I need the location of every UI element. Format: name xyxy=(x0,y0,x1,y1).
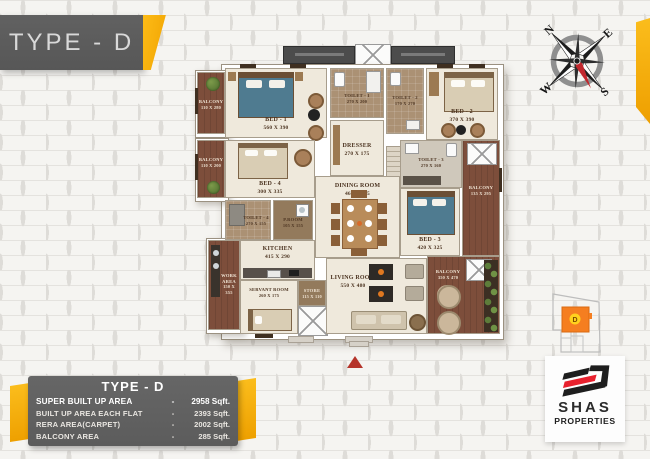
sofa-icon xyxy=(351,311,407,330)
room-label: BED - 4 300 X 335 xyxy=(226,181,314,195)
pillow xyxy=(471,80,485,87)
room-dims: 105 X 155 xyxy=(274,223,312,229)
room-dims: 270 X 160 xyxy=(401,163,461,169)
spec-separator: - xyxy=(166,408,180,420)
table-icon xyxy=(456,125,466,135)
chair-icon xyxy=(331,235,340,246)
cushion xyxy=(381,315,401,324)
spec-label: RERA AREA(CARPET) xyxy=(36,419,166,431)
armchair-icon xyxy=(405,264,424,279)
plant-icon xyxy=(206,77,220,91)
room-name: TOILET - 4 xyxy=(242,215,270,221)
spec-separator: - xyxy=(166,431,180,443)
chair-icon xyxy=(378,235,387,246)
bed-icon xyxy=(248,309,292,331)
type-banner: TYPE - D xyxy=(0,15,143,70)
spec-separator: - xyxy=(166,396,180,408)
fire-dot xyxy=(378,291,384,297)
spec-value: 285 Sqft. xyxy=(180,431,230,443)
plate xyxy=(365,235,372,242)
room-name: BALCONY xyxy=(198,157,224,163)
stool-icon xyxy=(470,123,485,138)
compass-s-label: S xyxy=(598,85,612,99)
chair-icon xyxy=(351,190,367,198)
washer-drum xyxy=(213,250,219,256)
compass-rose-icon: N E S W xyxy=(511,0,644,127)
nightstand xyxy=(228,72,236,81)
room-balcony-ml: BALCONY 110 X 200 xyxy=(197,140,225,198)
sink-icon xyxy=(267,270,281,278)
center-dish xyxy=(357,221,362,226)
wc-icon xyxy=(390,72,401,86)
stair-void xyxy=(298,306,328,336)
room-toilet-1: TOILET - 1 270 X 200 xyxy=(330,68,384,118)
room-dims: 300 X 335 xyxy=(226,189,314,196)
room-label: TOILET - 1 270 X 200 xyxy=(331,93,383,104)
logo-card: SHAS PROPERTIES xyxy=(545,356,625,442)
entry-step xyxy=(349,341,369,347)
spec-value: 2393 Sqft. xyxy=(180,408,230,420)
window-icon xyxy=(290,64,306,68)
shaft-plate xyxy=(295,53,344,56)
tv-unit-icon xyxy=(369,264,393,280)
room-label: TOILET - 4 270 X 155 xyxy=(242,215,270,226)
spec-table: TYPE - D SUPER BUILT UP AREA - 2958 Sqft… xyxy=(28,376,238,446)
room-dims: 270 X 200 xyxy=(331,99,383,105)
bed-icon xyxy=(238,72,294,118)
pillow xyxy=(255,316,262,324)
chair-icon xyxy=(331,219,340,230)
room-servant: SERVANT ROOM 260 X 175 xyxy=(240,280,298,334)
room-dims: 370 X 390 xyxy=(427,117,497,124)
duct-void xyxy=(355,44,391,66)
room-name: BED - 3 xyxy=(401,237,459,245)
window-icon xyxy=(437,64,453,68)
brochure-page: TYPE - D N E S W xyxy=(0,0,650,459)
bed-icon xyxy=(407,191,455,235)
planter-icon xyxy=(437,285,461,309)
pillow xyxy=(432,199,446,206)
room-dims: 170 X 270 xyxy=(387,101,423,107)
room-label: BALCONY 350 X 470 xyxy=(428,269,468,280)
room-work-area: WORK AREA 150 X 355 xyxy=(208,240,240,330)
room-name: WORK AREA xyxy=(219,273,239,284)
shas-logo-icon xyxy=(556,363,614,399)
planter-strip-icon xyxy=(484,260,498,332)
kitchen-counter-icon xyxy=(243,268,312,278)
side-table-icon xyxy=(409,314,426,331)
room-name: DRESSER xyxy=(331,143,383,151)
room-bed-3: BED - 3 420 X 325 xyxy=(400,188,460,256)
headboard xyxy=(249,310,253,330)
room-name: KITCHEN xyxy=(241,246,314,254)
compass-e-label: E xyxy=(601,26,616,41)
washer-icon xyxy=(296,204,309,217)
spec-separator: - xyxy=(166,419,180,431)
room-label: TOILET - 2 170 X 270 xyxy=(387,95,423,106)
wc-icon xyxy=(334,72,345,87)
dining-table-icon xyxy=(342,199,378,249)
armchair-icon xyxy=(405,286,424,301)
room-toilet-2: TOILET - 2 170 X 270 xyxy=(386,68,424,134)
washer-drum xyxy=(299,207,305,213)
room-store: STORE 115 X 110 xyxy=(298,280,326,306)
room-toilet-3: TOILET - 3 270 X 160 xyxy=(400,140,462,188)
wc-icon xyxy=(446,143,457,157)
room-dims: 135 X 295 xyxy=(463,191,499,197)
spec-label: SUPER BUILT UP AREA xyxy=(36,396,166,408)
room-dims: 560 X 390 xyxy=(226,125,326,132)
room-toilet-4: TOILET - 4 270 X 155 xyxy=(225,200,271,240)
room-label: BED - 2 370 X 390 xyxy=(427,109,497,123)
logo-brand-text: SHAS xyxy=(558,401,612,415)
room-label: BED - 3 420 X 325 xyxy=(401,237,459,251)
spec-label: BUILT UP AREA EACH FLAT xyxy=(36,408,166,420)
room-dims: 110 X 200 xyxy=(198,163,224,169)
room-label: P.ROOM 105 X 155 xyxy=(274,217,312,228)
room-name: SERVANT ROOM xyxy=(241,287,297,293)
room-bed-4: BED - 4 300 X 335 xyxy=(225,140,315,198)
chair-icon xyxy=(331,203,340,214)
shower-icon xyxy=(366,71,381,93)
basin-counter xyxy=(406,120,420,130)
window-icon xyxy=(240,64,256,68)
room-dining: DINING ROOM 460 X 505 xyxy=(315,176,400,258)
room-label: TOILET - 3 270 X 160 xyxy=(401,157,461,168)
plate xyxy=(347,220,354,227)
floor-plan: BALCONY 110 X 280 BALCONY 110 X 200 xyxy=(195,28,505,350)
plate xyxy=(347,235,354,242)
window-icon xyxy=(499,168,502,192)
chair-icon xyxy=(378,203,387,214)
site-key-map: D xyxy=(545,282,625,360)
window-icon xyxy=(255,334,273,338)
room-dims: 270 X 175 xyxy=(331,151,383,158)
bed-icon xyxy=(444,72,494,112)
headboard xyxy=(408,192,454,197)
room-dresser: DRESSER 270 X 175 xyxy=(330,120,384,176)
room-name: TOILET - 2 xyxy=(387,95,423,101)
room-dims: 110 X 280 xyxy=(198,105,224,111)
room-label: WORK AREA 150 X 355 xyxy=(219,273,239,295)
location-marker-icon xyxy=(347,356,363,368)
entry-step xyxy=(288,336,314,343)
pillow xyxy=(246,80,262,88)
room-dims: 260 X 175 xyxy=(241,293,297,299)
basin-icon xyxy=(405,143,419,154)
spec-row: BALCONY AREA - 285 Sqft. xyxy=(36,431,230,443)
spec-label: BALCONY AREA xyxy=(36,431,166,443)
logo-tagline-text: PROPERTIES xyxy=(554,416,615,426)
chair-icon xyxy=(378,219,387,230)
stool-icon xyxy=(441,123,456,138)
room-label: BALCONY 135 X 295 xyxy=(463,185,499,196)
window-icon xyxy=(469,64,485,68)
pillow xyxy=(245,150,258,156)
room-name: BED - 2 xyxy=(427,109,497,117)
spec-row: RERA AREA(CARPET) - 2002 Sqft. xyxy=(36,419,230,431)
room-dims: 350 X 470 xyxy=(428,275,468,281)
room-dims: 420 X 325 xyxy=(401,245,459,252)
page-title: TYPE - D xyxy=(9,29,134,57)
bed-icon xyxy=(238,143,288,179)
room-dims: 150 X 355 xyxy=(219,284,239,295)
banner-fold xyxy=(143,15,169,70)
room-label: KITCHEN 415 X 290 xyxy=(241,246,314,260)
pillow xyxy=(264,150,277,156)
spec-title: TYPE - D xyxy=(36,379,230,394)
stool-icon xyxy=(308,93,324,109)
edge-ribbon xyxy=(636,18,650,124)
room-label: BALCONY 110 X 200 xyxy=(198,157,224,168)
room-name: BED - 4 xyxy=(226,181,314,189)
room-balcony-tl: BALCONY 110 X 280 xyxy=(197,72,225,134)
fire-dot xyxy=(378,269,384,275)
chair-icon xyxy=(351,248,367,256)
wardrobe-icon xyxy=(429,72,439,96)
window-icon xyxy=(195,88,198,114)
cushion xyxy=(356,315,376,324)
room-label: STORE 115 X 110 xyxy=(299,288,325,299)
spec-value: 2002 Sqft. xyxy=(180,419,230,431)
unit-letter: D xyxy=(572,317,577,324)
service-shaft xyxy=(283,46,355,64)
room-label: BALCONY 110 X 280 xyxy=(198,99,224,110)
room-dims: 270 X 155 xyxy=(242,221,270,227)
room-label: SERVANT ROOM 260 X 175 xyxy=(241,287,297,298)
room-bed-1: BED - 1 560 X 390 xyxy=(225,68,327,138)
room-kitchen: KITCHEN 415 X 290 xyxy=(240,240,315,280)
headboard xyxy=(239,73,293,78)
headboard xyxy=(445,73,493,78)
window-icon xyxy=(195,154,198,180)
plate xyxy=(347,205,354,212)
pillow xyxy=(451,80,465,87)
room-dims: 415 X 290 xyxy=(241,254,314,261)
tv-unit-icon xyxy=(369,286,393,302)
pillow xyxy=(413,199,427,206)
room-name: BALCONY xyxy=(198,99,224,105)
service-shaft xyxy=(391,46,455,64)
room-living: LIVING ROOM 550 X 480 xyxy=(326,258,427,334)
room-balcony-br: BALCONY 350 X 470 xyxy=(427,256,500,334)
plant-icon xyxy=(207,181,220,194)
room-balcony-right: BALCONY 135 X 295 xyxy=(462,140,500,256)
plate xyxy=(365,220,372,227)
shaft-plate xyxy=(401,53,444,56)
nightstand xyxy=(295,72,303,81)
room-bed-2: BED - 2 370 X 390 xyxy=(426,68,498,140)
room-label: BED - 1 560 X 390 xyxy=(226,117,326,131)
chair-icon xyxy=(294,149,312,167)
room-proom: P.ROOM 105 X 155 xyxy=(273,200,313,240)
pillow xyxy=(269,80,285,88)
planter-icon xyxy=(437,311,461,335)
washer-drum xyxy=(213,263,219,269)
duct-void xyxy=(467,143,497,165)
spec-row: BUILT UP AREA EACH FLAT - 2393 Sqft. xyxy=(36,408,230,420)
plate xyxy=(365,205,372,212)
room-name: BED - 1 xyxy=(226,117,326,125)
spec-value: 2958 Sqft. xyxy=(180,396,230,408)
shower-icon xyxy=(403,176,441,185)
spec-row: SUPER BUILT UP AREA - 2958 Sqft. xyxy=(36,396,230,408)
headboard xyxy=(239,144,287,148)
room-dims: 115 X 110 xyxy=(299,294,325,300)
room-label: DRESSER 270 X 175 xyxy=(331,143,383,157)
stove-icon xyxy=(289,270,299,276)
